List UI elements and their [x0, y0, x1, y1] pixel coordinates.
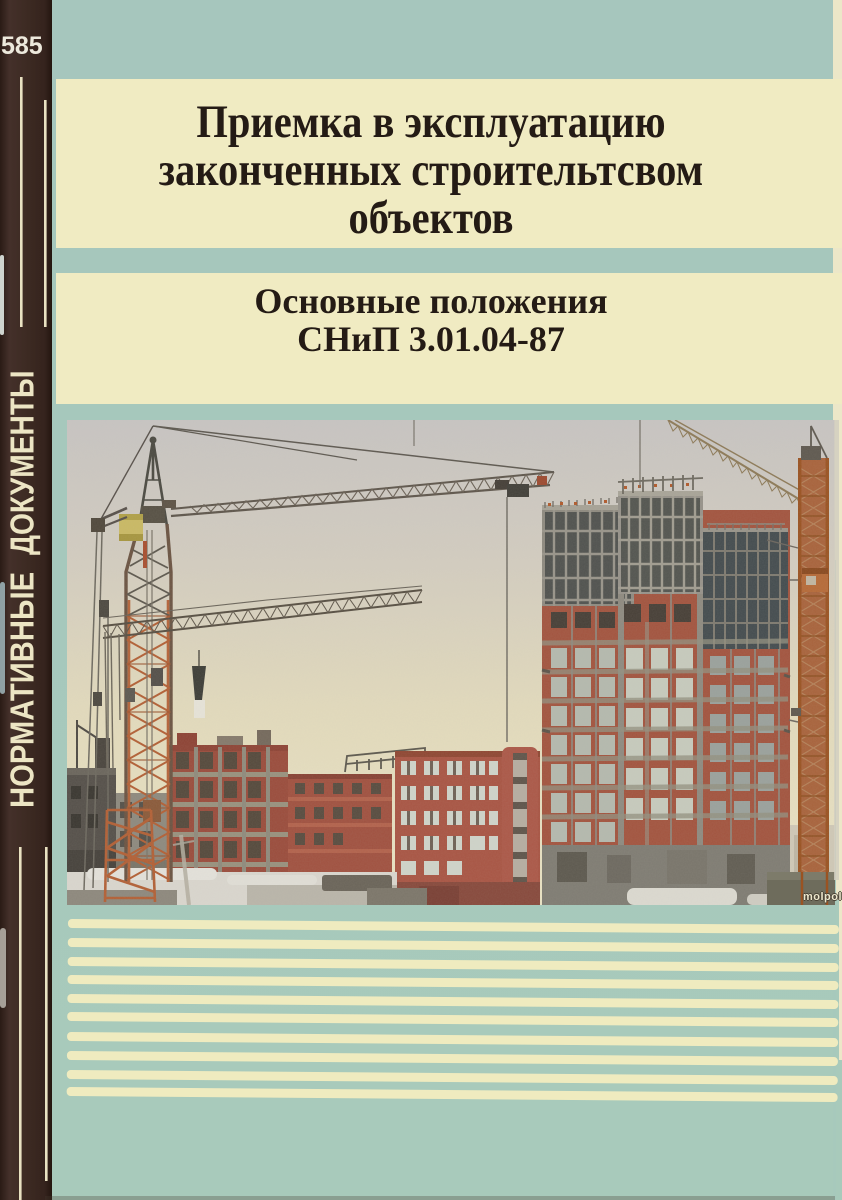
svg-text:НОРМАТИВНЫЕ: НОРМАТИВНЫЕ — [4, 572, 41, 808]
svg-text:585: 585 — [1, 32, 43, 60]
svg-text:ДОКУМЕНТЫ: ДОКУМЕНТЫ — [4, 370, 41, 555]
